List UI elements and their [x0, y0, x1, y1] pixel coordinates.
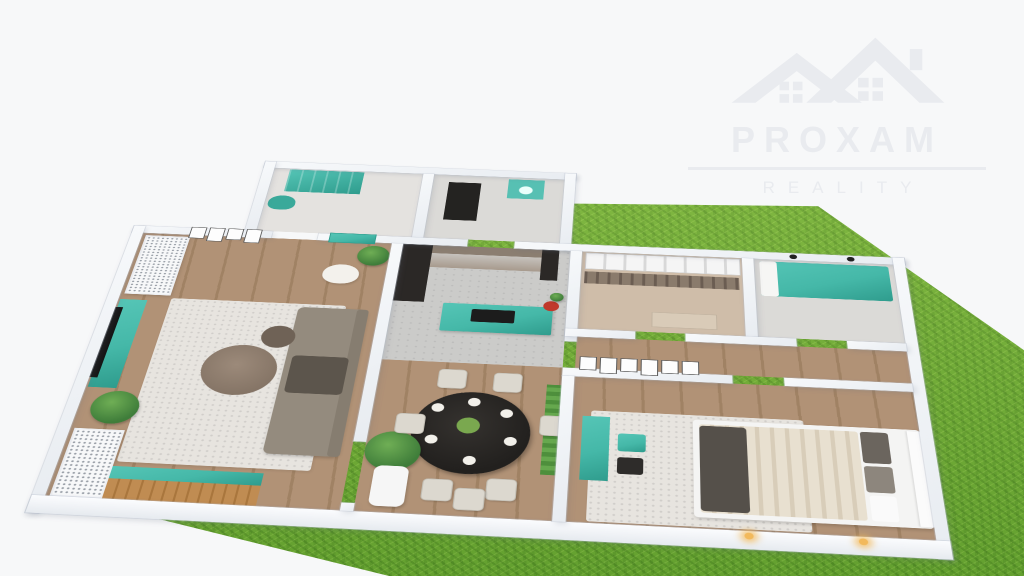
- place-setting: [503, 437, 517, 446]
- house-roofs-icon: [722, 28, 952, 120]
- wall-lamp-dark: [847, 257, 855, 262]
- wall-lamp-dark: [789, 254, 797, 259]
- place-setting: [431, 403, 445, 412]
- gallery-frame: [599, 357, 617, 374]
- kitchen-tall-unit-right: [540, 250, 560, 281]
- dining-chair: [452, 488, 486, 512]
- place-setting: [468, 398, 482, 407]
- brand-divider: [688, 167, 986, 170]
- floor-plan-scene: [25, 157, 953, 560]
- place-setting: [462, 456, 476, 466]
- living-dining-wall-stub: [340, 502, 355, 511]
- tall-white-planter: [368, 465, 410, 507]
- gallery-frame: [620, 358, 638, 372]
- dining-chair: [437, 369, 468, 389]
- teal-bed: [759, 261, 893, 301]
- dining-chair: [492, 373, 523, 394]
- teal-bed-pillows: [759, 261, 779, 296]
- gallery-frame: [579, 356, 597, 370]
- warm-wall-lamp: [744, 533, 753, 540]
- warm-wall-lamp: [859, 538, 869, 545]
- sofa-throw-blanket: [284, 355, 350, 395]
- teal-stool: [617, 433, 645, 452]
- teal-washer: [507, 179, 545, 199]
- dark-throw: [699, 426, 750, 514]
- proxam-watermark: PROXAM REALITY: [702, 28, 972, 198]
- cooktop: [470, 309, 515, 323]
- dining-chair: [394, 413, 427, 435]
- place-setting: [424, 434, 438, 443]
- place-setting: [500, 409, 513, 418]
- render-canvas: { "watermark": { "brand": "PROXAM", "tag…: [0, 0, 1024, 576]
- brand-text: PROXAM: [702, 122, 972, 158]
- closet-dresser: [651, 312, 717, 330]
- black-stool: [617, 457, 644, 475]
- gallery-frame: [682, 361, 700, 375]
- pillow-charcoal: [860, 432, 892, 465]
- dining-chair: [420, 478, 454, 501]
- pillow-white: [869, 495, 899, 522]
- teal-console-desk: [579, 416, 610, 481]
- gallery-frame: [641, 359, 659, 376]
- picture-frame: [225, 228, 244, 240]
- gallery-frame: [661, 360, 679, 374]
- kids-teal-wardrobe: [284, 169, 365, 194]
- dining-chair: [484, 478, 517, 501]
- teal-cube-shelves: [328, 233, 377, 245]
- bathroom-doorway: [443, 182, 481, 221]
- pillow-taupe: [864, 466, 896, 494]
